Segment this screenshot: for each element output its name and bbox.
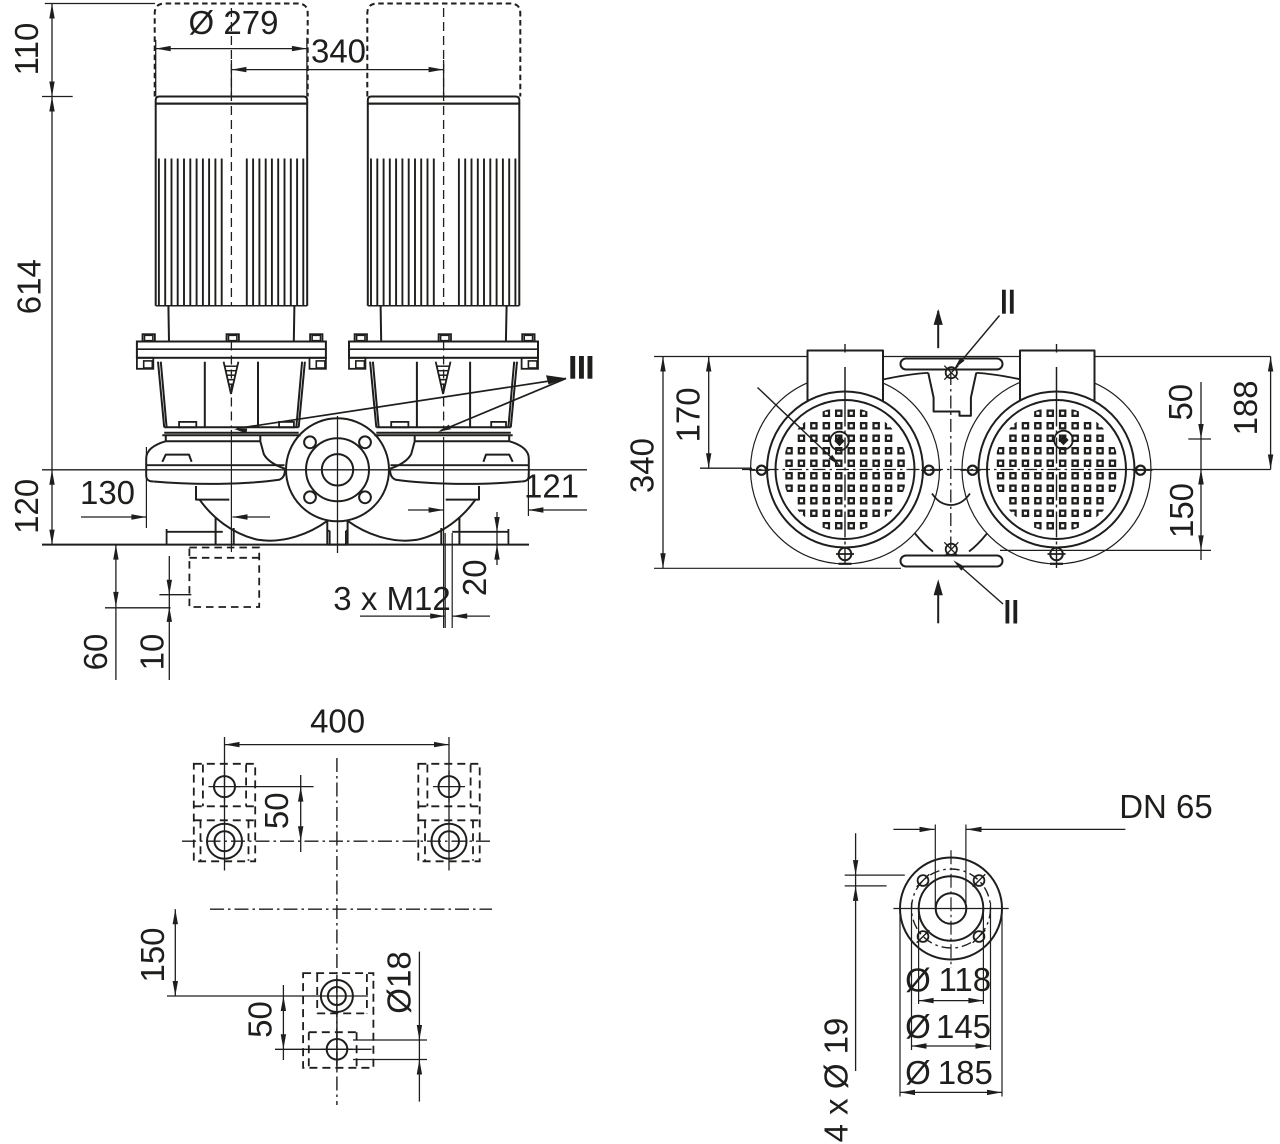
svg-text:400: 400 [310, 702, 365, 739]
svg-text:150: 150 [1163, 483, 1200, 538]
svg-text:145: 145 [936, 1008, 991, 1045]
svg-text:110: 110 [8, 23, 45, 76]
svg-text:Ø: Ø [905, 1054, 931, 1091]
svg-text:Ø: Ø [905, 1008, 931, 1045]
svg-text:340: 340 [623, 438, 660, 493]
svg-text:50: 50 [1162, 384, 1199, 421]
svg-text:10: 10 [133, 634, 170, 671]
svg-text:4 x Ø 19: 4 x Ø 19 [817, 1018, 854, 1143]
svg-text:50: 50 [258, 792, 295, 829]
svg-text:121: 121 [524, 467, 579, 504]
svg-text:120: 120 [8, 479, 45, 534]
svg-text:60: 60 [77, 634, 114, 671]
svg-text:Ø18: Ø18 [381, 951, 418, 1013]
svg-text:188: 188 [1227, 380, 1264, 435]
svg-text:DN 65: DN 65 [1119, 788, 1213, 825]
svg-text:150: 150 [134, 927, 171, 982]
svg-text:130: 130 [80, 474, 135, 511]
svg-text:118: 118 [938, 961, 991, 998]
svg-text:3 x M12: 3 x M12 [333, 580, 450, 617]
svg-text:Ø: Ø [905, 962, 931, 999]
svg-text:Ø 279: Ø 279 [189, 4, 279, 41]
svg-text:614: 614 [10, 259, 47, 314]
svg-text:20: 20 [456, 559, 493, 596]
svg-text:170: 170 [670, 387, 707, 442]
svg-text:340: 340 [311, 32, 366, 69]
svg-text:50: 50 [241, 1001, 278, 1038]
svg-text:185: 185 [938, 1054, 993, 1091]
